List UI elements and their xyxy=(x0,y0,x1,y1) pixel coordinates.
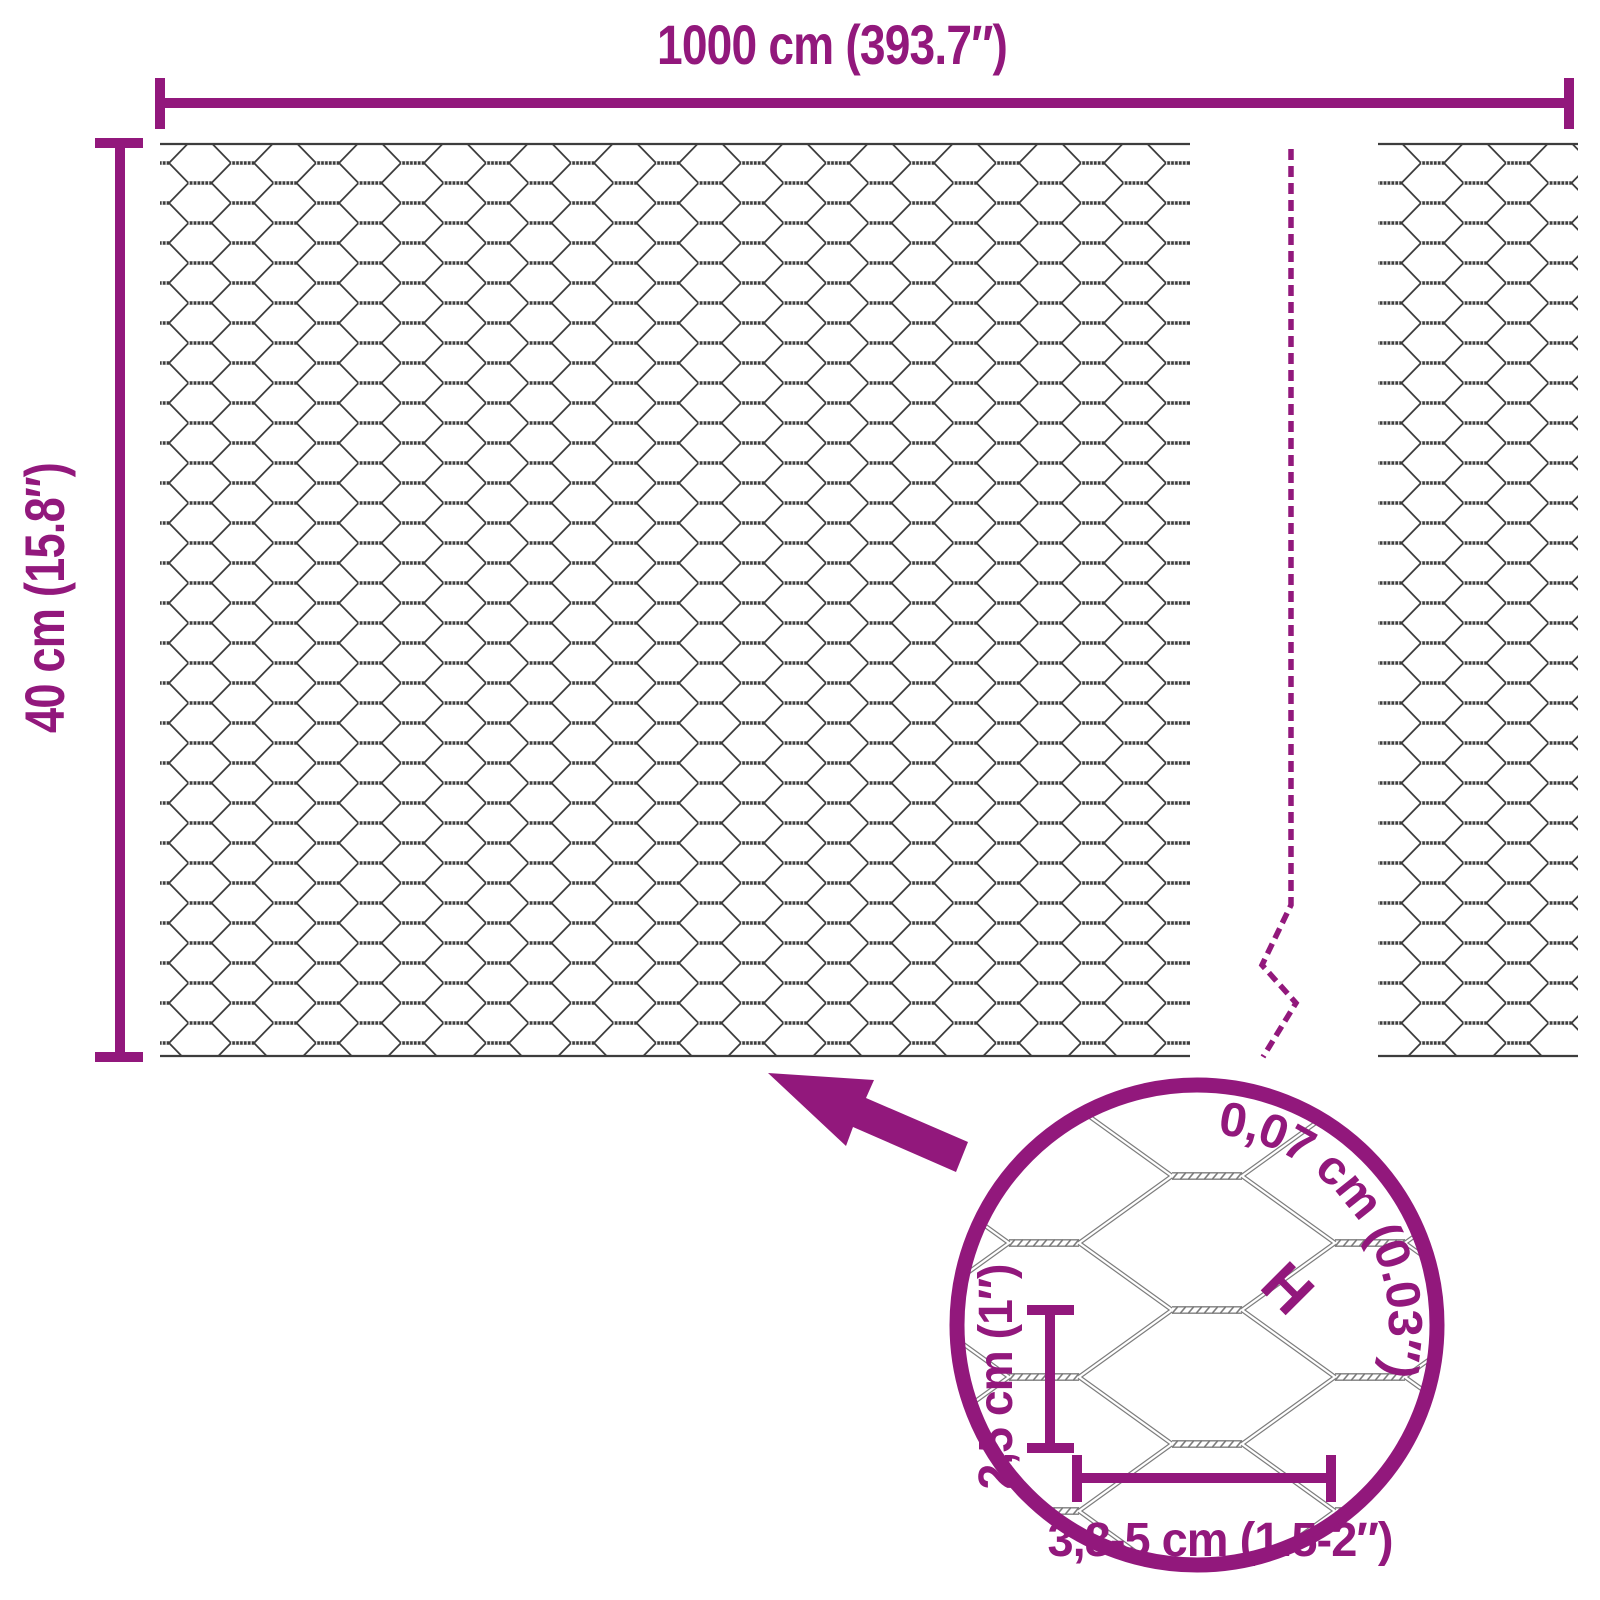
cell-width-label: 3,8-5 cm (1.5-2″) xyxy=(1048,1514,1393,1567)
mesh-main-fill xyxy=(160,143,1190,1057)
height-dimension-label: 40 cm (15.8″) xyxy=(13,463,76,733)
product-dimension-diagram: 1000 cm (393.7″) 40 cm (15.8″) 0,07 cm (… xyxy=(0,0,1600,1600)
width-dimension-line xyxy=(160,78,1569,129)
width-dimension-label: 1000 cm (393.7″) xyxy=(657,13,1007,76)
height-dimension-line xyxy=(95,143,143,1057)
height-dimension: 40 cm (15.8″) xyxy=(13,143,143,1057)
diagram-canvas: 1000 cm (393.7″) 40 cm (15.8″) 0,07 cm (… xyxy=(0,0,1600,1600)
magnifier-detail: 0,07 cm (0.03″) H 2,5 cm (1″) 3,8-5 cm (… xyxy=(949,1077,1445,1573)
zoom-arrow-icon xyxy=(768,1073,968,1172)
break-line xyxy=(1262,149,1296,1057)
mesh-panel-right xyxy=(1378,143,1578,1057)
cell-height-label: 2,5 cm (1″) xyxy=(970,1265,1023,1490)
width-dimension: 1000 cm (393.7″) xyxy=(160,13,1569,129)
mesh-right-fill xyxy=(1378,143,1578,1057)
mesh-panel-main xyxy=(160,143,1190,1057)
